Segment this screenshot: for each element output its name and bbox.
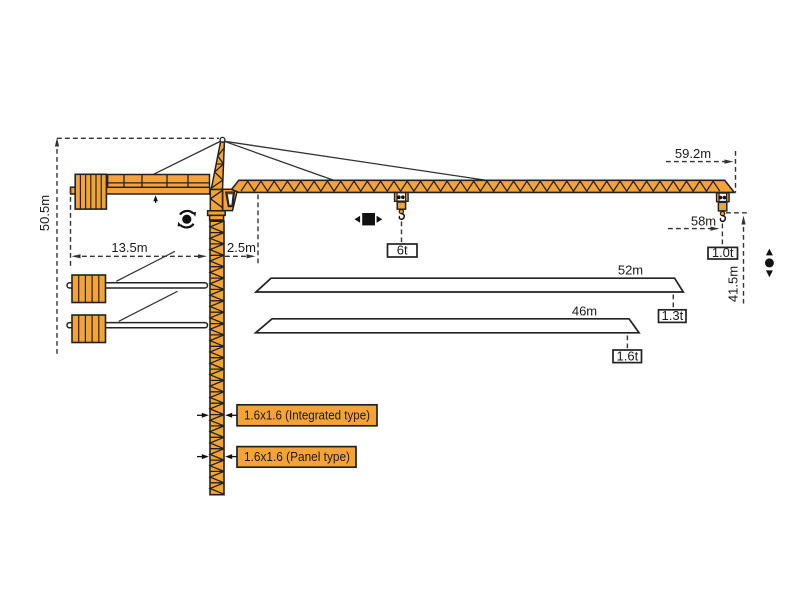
svg-text:1.0t: 1.0t [712,245,734,260]
svg-text:1.6t: 1.6t [617,348,639,363]
svg-text:59.2m: 59.2m [675,146,711,161]
svg-text:6t: 6t [397,243,408,258]
svg-text:50.5m: 50.5m [37,195,52,231]
svg-text:58m: 58m [691,214,716,229]
svg-text:52m: 52m [618,263,643,278]
svg-text:2.5m: 2.5m [227,240,256,255]
svg-text:46m: 46m [572,304,597,319]
svg-text:41.5m: 41.5m [726,266,741,302]
svg-text:1.6x1.6 (Panel type): 1.6x1.6 (Panel type) [244,449,350,464]
svg-text:13.5m: 13.5m [111,240,147,255]
svg-text:1.3t: 1.3t [662,308,684,323]
svg-text:1.6x1.6 (Integrated type): 1.6x1.6 (Integrated type) [244,407,370,422]
